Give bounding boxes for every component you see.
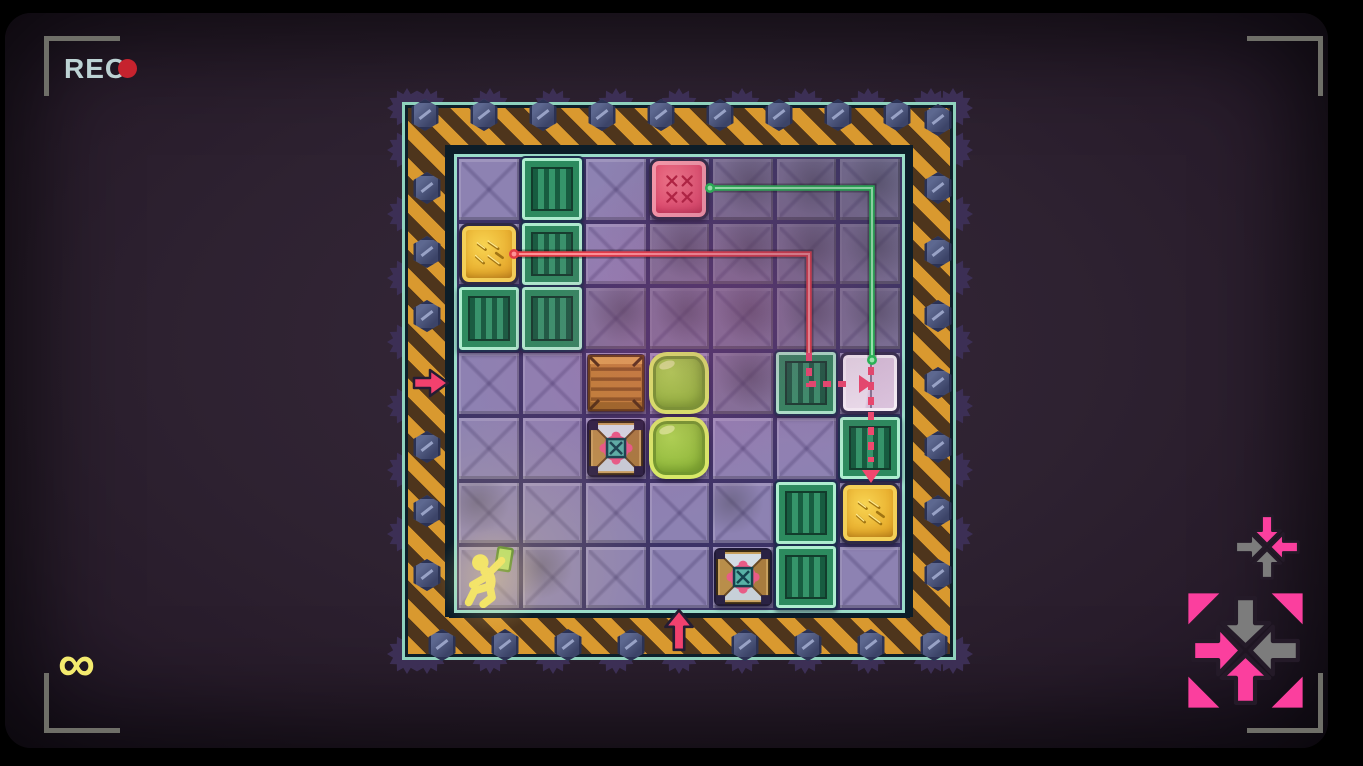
tile-r7c3 xyxy=(584,545,648,610)
green-crate-r3c2 xyxy=(522,287,582,349)
tile-r2c3 xyxy=(584,222,648,287)
rec-dot-icon xyxy=(118,59,137,78)
green-crate-r6c6 xyxy=(776,482,836,544)
converge-arrows-icon-small xyxy=(1233,513,1301,581)
gold-crate-r6c7 xyxy=(840,482,900,544)
green-crate-r2c2 xyxy=(522,223,582,285)
green-crate-r3c1 xyxy=(459,287,519,349)
tile-r7c7 xyxy=(838,545,902,610)
metal-crate-r5c3 xyxy=(586,417,646,479)
tile-r3c3 xyxy=(584,286,648,351)
tile-r1c7 xyxy=(838,157,902,222)
entry-arrow-bottom xyxy=(661,607,697,653)
tile-r7c4 xyxy=(648,545,712,610)
tile-r1c5 xyxy=(711,157,775,222)
tile-r2c6 xyxy=(775,222,839,287)
tile-r6c3 xyxy=(584,481,648,546)
tile-r3c7 xyxy=(838,286,902,351)
white-crate-r4c7 xyxy=(840,352,900,414)
camera-viewfinder-screen: REC ∞ xyxy=(0,0,1363,766)
tile-r6c4 xyxy=(648,481,712,546)
green-crate-r7c6 xyxy=(776,546,836,608)
green-crate-r5c7 xyxy=(840,417,900,479)
tile-r5c2 xyxy=(521,416,585,481)
tile-r5c5 xyxy=(711,416,775,481)
entry-arrow-left xyxy=(411,366,451,400)
tile-r4c2 xyxy=(521,351,585,416)
tile-r3c4 xyxy=(648,286,712,351)
tile-r2c4 xyxy=(648,222,712,287)
viewfinder-corner-top-right xyxy=(1247,36,1323,96)
tile-r4c5 xyxy=(711,351,775,416)
rec-label: REC xyxy=(64,53,126,85)
tile-r2c7 xyxy=(838,222,902,287)
tile-r5c1 xyxy=(457,416,521,481)
play-area[interactable] xyxy=(457,157,902,610)
tile-r1c1 xyxy=(457,157,521,222)
metal-crate-r7c5 xyxy=(713,546,773,608)
moves-counter-infinity: ∞ xyxy=(58,638,95,690)
puzzle-board[interactable] xyxy=(393,90,967,668)
player-r7c1 xyxy=(459,546,519,608)
tile-r6c5 xyxy=(711,481,775,546)
gold-crate-r2c1 xyxy=(459,223,519,285)
tile-r2c5 xyxy=(711,222,775,287)
pink-crate-r1c4 xyxy=(649,158,709,220)
green-crate-r1c2 xyxy=(522,158,582,220)
tile-r3c6 xyxy=(775,286,839,351)
jelly-r4c4 xyxy=(649,352,709,414)
green-crate-r4c6 xyxy=(776,352,836,414)
tile-r4c1 xyxy=(457,351,521,416)
tile-r1c6 xyxy=(775,157,839,222)
tile-r3c5 xyxy=(711,286,775,351)
tile-r1c3 xyxy=(584,157,648,222)
tile-r5c6 xyxy=(775,416,839,481)
converge-arrows-icon-large xyxy=(1186,591,1305,710)
wood-crate-r4c3 xyxy=(586,352,646,414)
jelly-r5c4 xyxy=(649,417,709,479)
